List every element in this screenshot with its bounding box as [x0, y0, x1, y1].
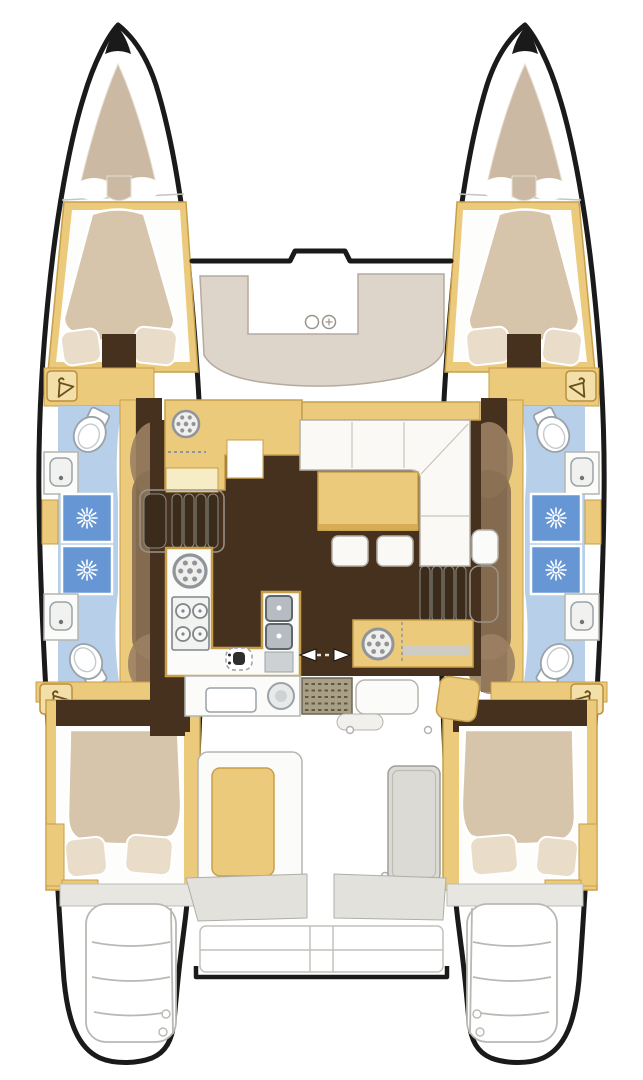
- aft-counter: [185, 676, 300, 716]
- burner-icon: [176, 627, 190, 641]
- cockpit-bench-cushion: [212, 768, 274, 876]
- coachroof-front-line: [192, 251, 451, 261]
- instrument-dial-icon: [363, 629, 393, 659]
- round-sink-icon: [174, 555, 206, 587]
- appliance-panel: [206, 688, 256, 712]
- deck-plan-page: Catamaran interior deck plan (top-down f…: [0, 0, 643, 1080]
- burner-icon: [193, 604, 207, 618]
- aft-bench: [334, 874, 446, 920]
- cockpit-table: [388, 766, 440, 882]
- foredeck-lounge: [200, 274, 444, 386]
- aft-bench: [186, 874, 307, 921]
- sideboard: [302, 402, 480, 420]
- burner-icon: [193, 627, 207, 641]
- cockpit-entry: [302, 678, 418, 730]
- corner-shelf: [472, 530, 498, 564]
- ottoman: [332, 536, 368, 566]
- cup-holder: [306, 316, 319, 329]
- nav-seat: [435, 675, 480, 722]
- cockpit-seat: [356, 680, 418, 714]
- transom-platform: [196, 926, 447, 977]
- ottoman: [377, 536, 413, 566]
- burner-icon: [176, 604, 190, 618]
- catamaran-deck-plan: Catamaran interior deck plan (top-down f…: [0, 0, 643, 1080]
- worktop-dial-icon: [173, 411, 199, 437]
- coffee-table: [318, 472, 418, 530]
- cockpit: [186, 727, 446, 922]
